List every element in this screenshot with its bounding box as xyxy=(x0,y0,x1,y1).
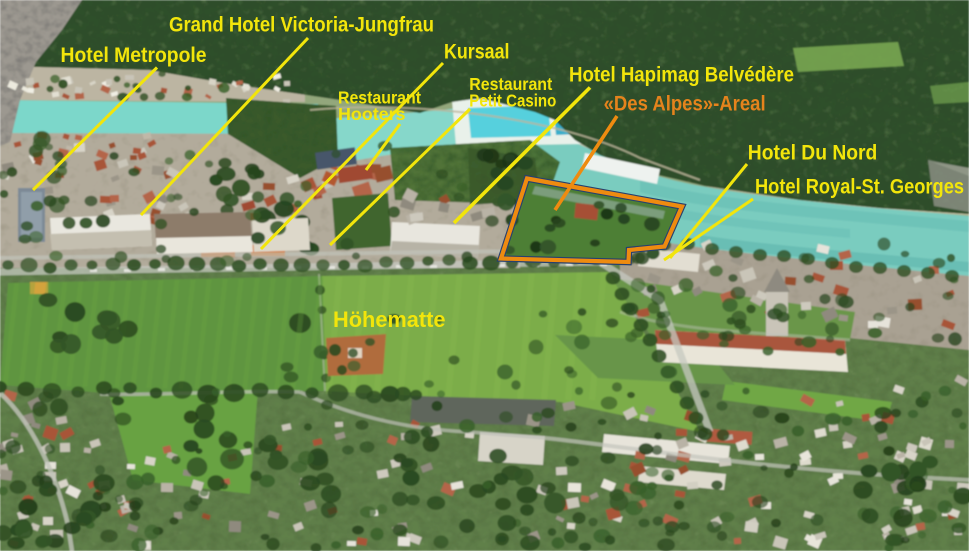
svg-text:«Des Alpes»-Areal: «Des Alpes»-Areal xyxy=(604,92,766,116)
svg-text:Hotel Hapimag Belvédère: Hotel Hapimag Belvédère xyxy=(569,63,794,87)
svg-text:Hotel Royal-St. Georges: Hotel Royal-St. Georges xyxy=(755,175,964,199)
svg-text:Hotel Metropole: Hotel Metropole xyxy=(61,43,207,67)
svg-text:Grand Hotel Victoria-Jungfrau: Grand Hotel Victoria-Jungfrau xyxy=(169,12,434,36)
svg-text:Höhematte: Höhematte xyxy=(333,307,446,332)
svg-text:Petit Casino: Petit Casino xyxy=(469,90,556,110)
svg-text:Hotel Du Nord: Hotel Du Nord xyxy=(748,141,878,165)
svg-text:Hooters: Hooters xyxy=(338,104,406,124)
svg-text:Kursaal: Kursaal xyxy=(444,40,510,64)
